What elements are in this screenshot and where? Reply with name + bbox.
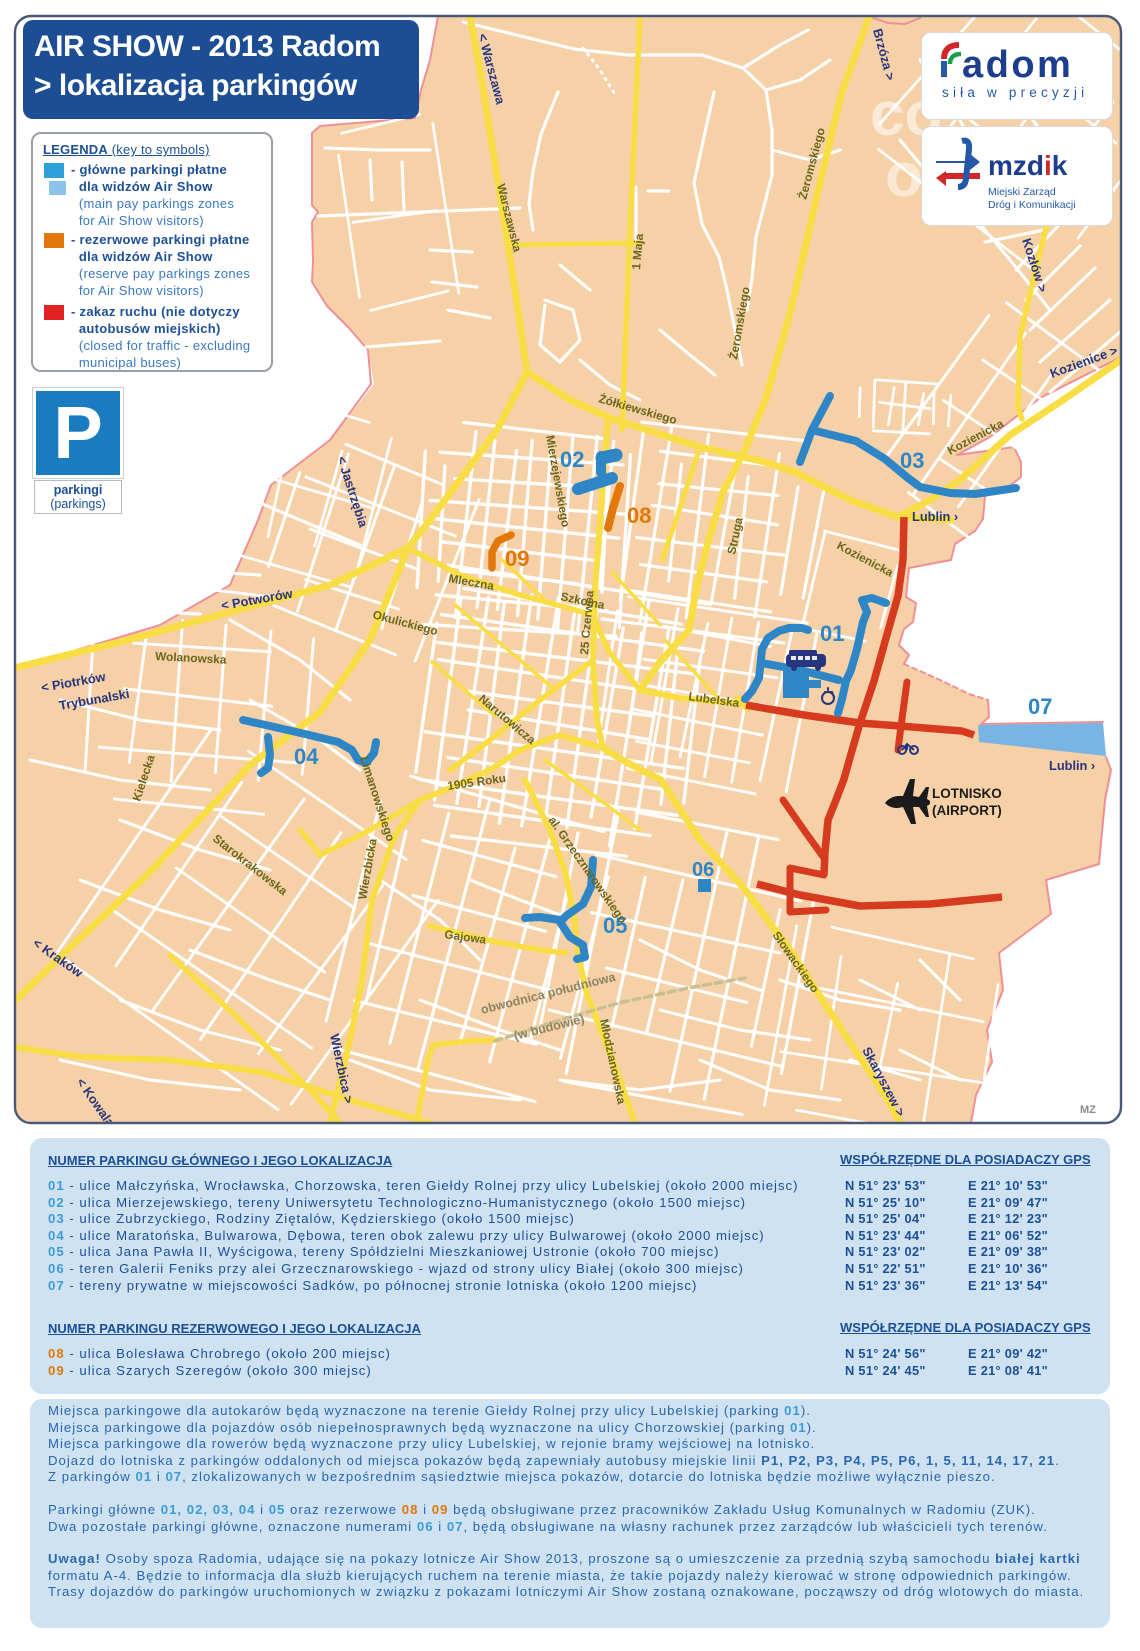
svg-text:01: 01: [820, 621, 844, 646]
svg-text:LOTNISKO: LOTNISKO: [932, 786, 1002, 801]
svg-text:Lublin ›: Lublin ›: [912, 509, 958, 524]
svg-text:MZ: MZ: [1080, 1104, 1096, 1116]
svg-text:siła w precyzji: siła w precyzji: [942, 85, 1088, 100]
svg-text:09: 09: [505, 546, 529, 571]
svg-text:06: 06: [692, 859, 714, 881]
svg-text:03: 03: [900, 448, 924, 473]
svg-text:04: 04: [294, 744, 319, 769]
svg-text:07: 07: [1028, 694, 1052, 719]
svg-text:Lublin ›: Lublin ›: [1049, 758, 1095, 773]
svg-text:mzdik: mzdik: [988, 150, 1068, 181]
svg-text:Dróg i Komunikacji: Dróg i Komunikacji: [988, 199, 1076, 211]
svg-text:adom: adom: [962, 44, 1073, 86]
svg-text:Miejski Zarząd: Miejski Zarząd: [988, 186, 1056, 198]
svg-text:o: o: [885, 141, 923, 210]
svg-text:(AIRPORT): (AIRPORT): [932, 803, 1002, 818]
svg-text:08: 08: [627, 503, 651, 528]
